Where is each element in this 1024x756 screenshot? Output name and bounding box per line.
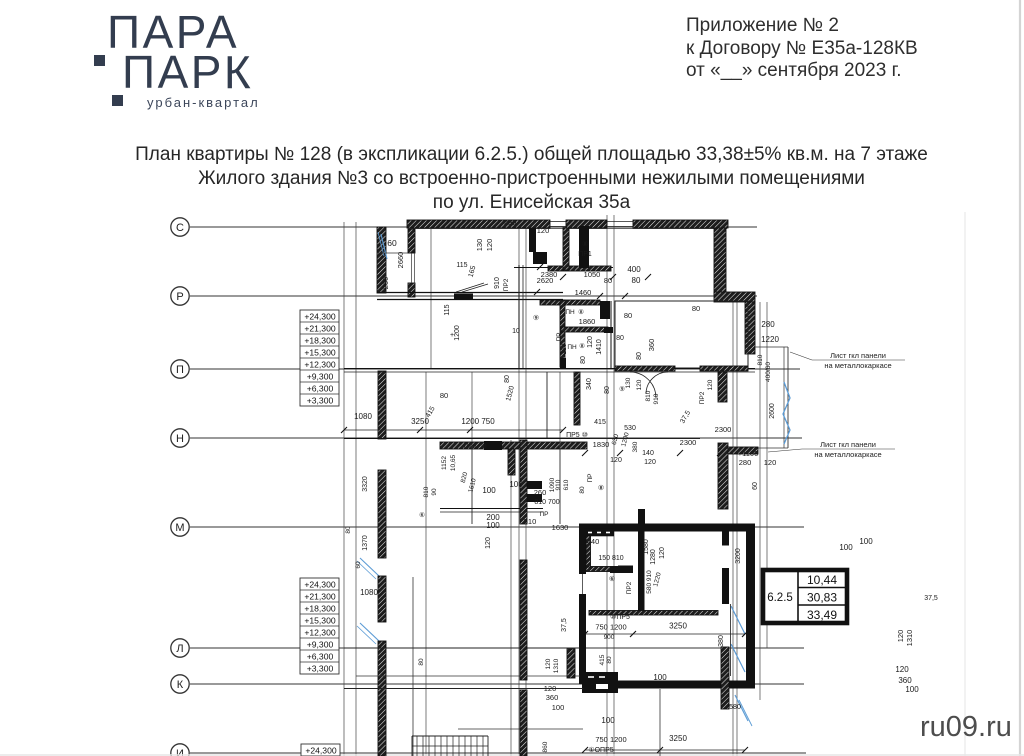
svg-text:440: 440 <box>587 537 600 546</box>
svg-text:400/60: 400/60 <box>765 362 772 382</box>
svg-text:1520: 1520 <box>505 385 516 402</box>
svg-text:115: 115 <box>456 262 467 269</box>
svg-text:100: 100 <box>653 673 667 682</box>
svg-text:①ОПР5: ①ОПР5 <box>588 746 613 754</box>
svg-text:415: 415 <box>594 419 606 426</box>
svg-text:80: 80 <box>440 391 448 400</box>
svg-text:510: 510 <box>524 517 537 526</box>
svg-text:+12,300: +12,300 <box>304 360 336 370</box>
svg-text:ПР: ПР <box>587 473 594 482</box>
svg-text:+6,300: +6,300 <box>307 384 334 394</box>
svg-text:140: 140 <box>642 450 654 457</box>
svg-text:Р: Р <box>176 291 183 303</box>
svg-text:ПР: ПР <box>539 511 548 518</box>
svg-text:⑧: ⑧ <box>579 342 585 350</box>
svg-text:80: 80 <box>504 375 511 383</box>
svg-text:860: 860 <box>542 741 549 752</box>
svg-text:10,44: 10,44 <box>807 573 837 587</box>
svg-text:+3,300: +3,300 <box>307 664 334 674</box>
svg-text:3250: 3250 <box>669 734 687 743</box>
svg-text:⑥: ⑥ <box>609 575 615 583</box>
svg-text:290: 290 <box>504 218 517 227</box>
svg-text:120: 120 <box>561 343 568 354</box>
svg-text:1460: 1460 <box>575 288 592 297</box>
svg-text:415: 415 <box>599 654 606 665</box>
svg-text:80: 80 <box>604 386 611 394</box>
svg-text:100: 100 <box>482 486 496 495</box>
svg-text:120: 120 <box>485 537 492 549</box>
svg-text:280: 280 <box>761 320 775 329</box>
svg-text:580 910: 580 910 <box>646 570 653 594</box>
svg-text:+15,300: +15,300 <box>304 348 336 358</box>
svg-text:+9,300: +9,300 <box>307 640 334 650</box>
svg-text:750 1200: 750 1200 <box>595 735 626 744</box>
svg-text:80: 80 <box>604 276 612 285</box>
svg-text:1630: 1630 <box>552 523 569 532</box>
svg-text:120: 120 <box>896 630 905 643</box>
svg-text:260: 260 <box>381 277 390 290</box>
svg-text:10: 10 <box>512 328 520 335</box>
svg-text:120: 120 <box>764 458 777 467</box>
svg-text:910: 910 <box>555 479 562 490</box>
svg-text:80: 80 <box>636 352 643 360</box>
svg-text:2620: 2620 <box>537 276 554 285</box>
svg-text:120: 120 <box>659 547 666 559</box>
svg-text:⑧: ⑧ <box>578 308 584 316</box>
svg-text:37,5: 37,5 <box>561 618 568 632</box>
svg-text:ПР2: ПР2 <box>626 581 633 594</box>
svg-text:Л: Л <box>176 643 183 655</box>
svg-text:+18,300: +18,300 <box>304 604 336 614</box>
svg-text:130: 130 <box>625 377 632 388</box>
svg-text:+12,300: +12,300 <box>304 628 336 638</box>
svg-text:610: 610 <box>563 479 570 490</box>
svg-text:+: + <box>450 332 454 339</box>
svg-text:1220: 1220 <box>652 571 663 587</box>
svg-text:⑩ПР5: ⑩ПР5 <box>610 613 630 621</box>
svg-text:1610: 1610 <box>467 477 478 493</box>
svg-text:3200: 3200 <box>735 548 742 564</box>
svg-text:⑨: ⑨ <box>619 385 625 393</box>
svg-text:ПР5 ⑩: ПР5 ⑩ <box>566 431 588 439</box>
svg-text:ПН: ПН <box>567 344 577 351</box>
svg-text:ПР1: ПР1 <box>578 251 592 258</box>
svg-text:100: 100 <box>509 480 523 489</box>
svg-text:ПР2: ПР2 <box>503 278 510 291</box>
svg-text:120: 120 <box>544 684 557 693</box>
svg-text:100: 100 <box>552 703 565 712</box>
svg-text:+15,300: +15,300 <box>304 616 336 626</box>
svg-text:120: 120 <box>537 226 550 235</box>
svg-text:К: К <box>177 679 184 691</box>
svg-text:3320: 3320 <box>362 476 369 492</box>
svg-text:3250: 3250 <box>411 417 429 426</box>
svg-text:+24,300: +24,300 <box>304 580 336 590</box>
svg-text:80: 80 <box>345 526 352 534</box>
svg-text:3250: 3250 <box>669 622 687 631</box>
svg-text:750 1200: 750 1200 <box>595 623 626 632</box>
svg-text:810: 810 <box>757 354 764 365</box>
svg-text:С: С <box>176 222 184 234</box>
svg-text:130: 130 <box>475 239 484 252</box>
svg-text:280: 280 <box>739 458 752 467</box>
svg-text:+24,300: +24,300 <box>304 312 336 322</box>
svg-text:1090: 1090 <box>549 477 556 492</box>
svg-text:80: 80 <box>624 311 632 320</box>
svg-text:ПР2: ПР2 <box>699 391 706 404</box>
svg-text:120: 120 <box>610 457 622 464</box>
svg-text:ПР5: ПР5 <box>464 443 477 450</box>
svg-text:1370: 1370 <box>362 535 369 551</box>
svg-text:120: 120 <box>587 336 594 348</box>
svg-text:М: М <box>175 522 184 534</box>
svg-text:⑩: ⑩ <box>481 442 487 450</box>
svg-text:⑧: ⑧ <box>582 240 588 248</box>
svg-text:33,49: 33,49 <box>807 608 837 622</box>
svg-text:360: 360 <box>647 339 656 352</box>
svg-text:+3,300: +3,300 <box>307 396 334 406</box>
svg-text:150 810: 150 810 <box>598 555 623 562</box>
svg-text:1310: 1310 <box>553 658 560 673</box>
svg-text:1580: 1580 <box>643 539 650 555</box>
svg-text:1220: 1220 <box>761 335 779 344</box>
svg-text:Лист гкл панели: Лист гкл панели <box>830 351 886 360</box>
svg-text:на металлокаркасе: на металлокаркасе <box>824 361 891 370</box>
svg-text:⑥: ⑥ <box>419 511 425 519</box>
svg-text:ПР: ПР <box>556 332 563 341</box>
svg-text:+1100: +1100 <box>738 449 759 458</box>
svg-text:60: 60 <box>387 238 397 248</box>
svg-text:165: 165 <box>468 265 478 278</box>
svg-text:100: 100 <box>905 685 919 694</box>
svg-text:Н: Н <box>176 433 184 445</box>
svg-text:80: 80 <box>616 335 624 342</box>
svg-text:2300: 2300 <box>680 438 697 447</box>
svg-text:+6,300: +6,300 <box>307 652 334 662</box>
svg-text:910: 910 <box>653 393 660 404</box>
svg-text:360: 360 <box>546 693 559 702</box>
svg-text:37,5: 37,5 <box>679 410 692 425</box>
svg-text:60: 60 <box>752 482 759 490</box>
svg-text:90: 90 <box>431 488 438 496</box>
svg-text:1080: 1080 <box>360 588 378 597</box>
svg-text:1860: 1860 <box>579 317 596 326</box>
svg-text:+9,300: +9,300 <box>307 372 334 382</box>
svg-text:80: 80 <box>580 356 587 364</box>
svg-text:100: 100 <box>486 521 500 530</box>
svg-text:580: 580 <box>729 704 741 711</box>
svg-text:910: 910 <box>494 277 501 289</box>
svg-text:120: 120 <box>707 379 714 390</box>
svg-text:1310: 1310 <box>905 630 914 647</box>
svg-text:1280: 1280 <box>650 549 657 565</box>
svg-text:360: 360 <box>898 676 912 685</box>
svg-text:2300: 2300 <box>715 425 732 434</box>
svg-text:80: 80 <box>692 304 700 313</box>
svg-text:100: 100 <box>859 537 873 546</box>
svg-text:900: 900 <box>604 634 615 641</box>
svg-text:30,83: 30,83 <box>807 591 837 605</box>
svg-text:120: 120 <box>545 658 552 669</box>
svg-text:80: 80 <box>579 486 586 494</box>
svg-text:1410: 1410 <box>596 339 603 355</box>
svg-text:П: П <box>176 364 184 376</box>
svg-text:120: 120 <box>895 665 909 674</box>
svg-text:6.2.5: 6.2.5 <box>767 592 793 604</box>
svg-text:+24,300: +24,300 <box>305 746 337 756</box>
svg-text:1200 750: 1200 750 <box>461 417 495 426</box>
svg-text:120: 120 <box>485 239 494 252</box>
svg-text:630: 630 <box>611 433 621 446</box>
svg-text:120: 120 <box>636 379 643 390</box>
svg-text:380: 380 <box>632 441 639 452</box>
svg-text:100: 100 <box>601 716 615 725</box>
svg-text:80: 80 <box>418 658 425 666</box>
svg-text:530: 530 <box>624 425 636 432</box>
svg-text:1080: 1080 <box>354 412 372 421</box>
svg-text:1050: 1050 <box>584 270 601 279</box>
svg-text:10,65: 10,65 <box>450 454 457 471</box>
svg-text:80: 80 <box>632 276 641 285</box>
svg-text:1200: 1200 <box>620 431 631 447</box>
svg-text:400: 400 <box>627 265 641 274</box>
svg-text:+21,300: +21,300 <box>304 324 336 334</box>
svg-text:Лист гкл панели: Лист гкл панели <box>820 440 876 449</box>
svg-text:810: 810 <box>645 390 652 401</box>
svg-text:1830: 1830 <box>593 440 610 449</box>
svg-text:60: 60 <box>355 561 362 569</box>
svg-text:37,5: 37,5 <box>924 595 938 602</box>
svg-text:2600: 2600 <box>769 403 776 419</box>
svg-text:+18,300: +18,300 <box>304 336 336 346</box>
svg-text:на металлокаркасе: на металлокаркасе <box>814 450 881 459</box>
svg-text:810: 810 <box>423 486 430 497</box>
svg-text:100: 100 <box>839 543 853 552</box>
svg-text:820: 820 <box>460 471 470 484</box>
svg-text:810 700: 810 700 <box>534 499 559 506</box>
svg-text:1200: 1200 <box>454 325 461 341</box>
svg-text:1152: 1152 <box>441 456 448 470</box>
svg-text:2660: 2660 <box>396 252 405 269</box>
svg-text:120: 120 <box>644 459 656 466</box>
svg-text:+21,300: +21,300 <box>304 592 336 602</box>
svg-text:115: 115 <box>444 304 451 315</box>
svg-text:380: 380 <box>718 635 725 647</box>
svg-text:⑨: ⑨ <box>533 314 539 322</box>
svg-text:260: 260 <box>534 488 547 497</box>
svg-text:340: 340 <box>586 378 593 390</box>
svg-text:⑧: ⑧ <box>598 484 604 492</box>
svg-text:80: 80 <box>606 656 613 664</box>
svg-text:ПН: ПН <box>565 309 575 316</box>
